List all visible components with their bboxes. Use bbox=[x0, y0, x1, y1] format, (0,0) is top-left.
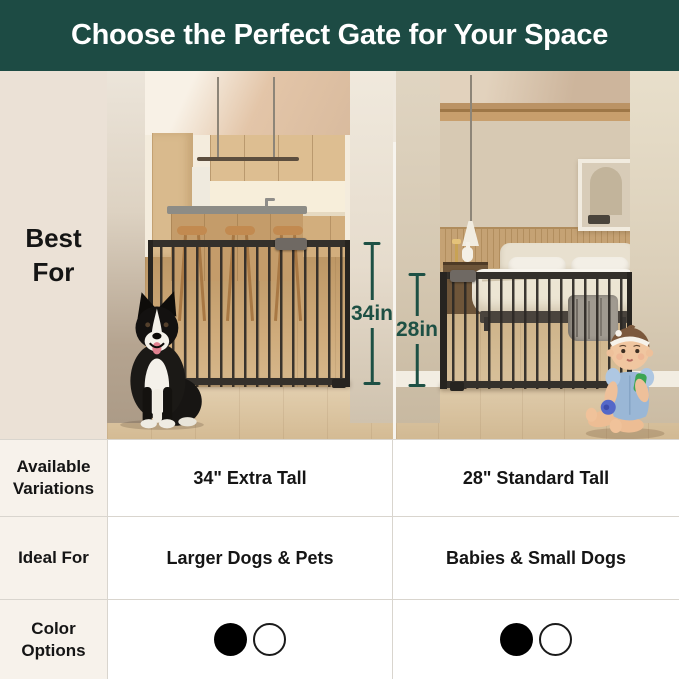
comparison-table: Available Variations 34" Extra Tall 28" … bbox=[0, 439, 679, 679]
wall-art-image bbox=[590, 167, 622, 215]
crown-molding bbox=[440, 103, 630, 121]
pendant-light-cord bbox=[217, 77, 219, 159]
measurement-label: 34in bbox=[351, 302, 393, 326]
left-color-options bbox=[107, 600, 392, 679]
measure-line bbox=[371, 245, 374, 300]
best-for-sidebar: Best For bbox=[0, 71, 107, 439]
page-title: Choose the Perfect Gate for Your Space bbox=[71, 19, 608, 52]
gate-post bbox=[440, 272, 447, 389]
photo-extra-tall-gate: 34in bbox=[107, 71, 393, 439]
table-lamp bbox=[455, 243, 458, 262]
white-color-swatch bbox=[539, 623, 572, 656]
bedroom-ceiling bbox=[440, 71, 630, 103]
measure-line bbox=[416, 276, 419, 316]
black-color-swatch bbox=[500, 623, 533, 656]
right-ideal-for-value: Babies & Small Dogs bbox=[392, 517, 679, 599]
left-variation-value: 34" Extra Tall bbox=[107, 440, 392, 516]
left-ideal-for-value: Larger Dogs & Pets bbox=[107, 517, 392, 599]
gate-foot bbox=[332, 379, 346, 388]
height-measurement-34in: 34in bbox=[356, 242, 388, 385]
wall-art-detail bbox=[588, 215, 610, 224]
right-color-options bbox=[392, 600, 679, 679]
product-infographic: Choose the Perfect Gate for Your Space B… bbox=[0, 0, 679, 679]
height-measurement-28in: 28in bbox=[401, 273, 433, 387]
measure-tick-bottom bbox=[364, 382, 381, 385]
comparison-photo-band: Best For bbox=[0, 71, 679, 439]
gate-latch bbox=[275, 238, 307, 250]
table-row-available-variations: Available Variations 34" Extra Tall 28" … bbox=[0, 439, 679, 516]
white-color-swatch bbox=[253, 623, 286, 656]
row-label: Available Variations bbox=[0, 440, 107, 516]
island-countertop bbox=[167, 206, 307, 214]
border-collie-dog bbox=[111, 287, 213, 431]
photo-standard-tall-gate: 28in bbox=[396, 71, 679, 439]
measure-tick-bottom bbox=[409, 384, 426, 387]
gate-top-rail bbox=[148, 240, 350, 247]
pendant-light-cord bbox=[273, 77, 275, 159]
measurement-label: 28in bbox=[396, 318, 438, 342]
baby bbox=[580, 323, 674, 439]
right-variation-value: 28" Standard Tall bbox=[392, 440, 679, 516]
row-label: Ideal For bbox=[0, 517, 107, 599]
gate-post bbox=[345, 240, 350, 387]
wall-art-frame bbox=[578, 159, 636, 231]
table-row-ideal-for: Ideal For Larger Dogs & Pets Babies & Sm… bbox=[0, 516, 679, 599]
table-row-color-options: Color Options bbox=[0, 599, 679, 679]
row-label: Color Options bbox=[0, 600, 107, 679]
gate-foot bbox=[450, 382, 464, 391]
black-color-swatch bbox=[214, 623, 247, 656]
best-for-label: Best For bbox=[18, 221, 90, 289]
header-banner: Choose the Perfect Gate for Your Space bbox=[0, 0, 679, 71]
pendant-light-cord bbox=[470, 75, 472, 221]
measure-line bbox=[416, 344, 419, 384]
linear-pendant-light bbox=[197, 157, 299, 161]
gate-latch bbox=[450, 270, 476, 282]
vase bbox=[462, 247, 473, 262]
kitchen-ceiling bbox=[145, 71, 350, 135]
measure-line bbox=[371, 328, 374, 383]
